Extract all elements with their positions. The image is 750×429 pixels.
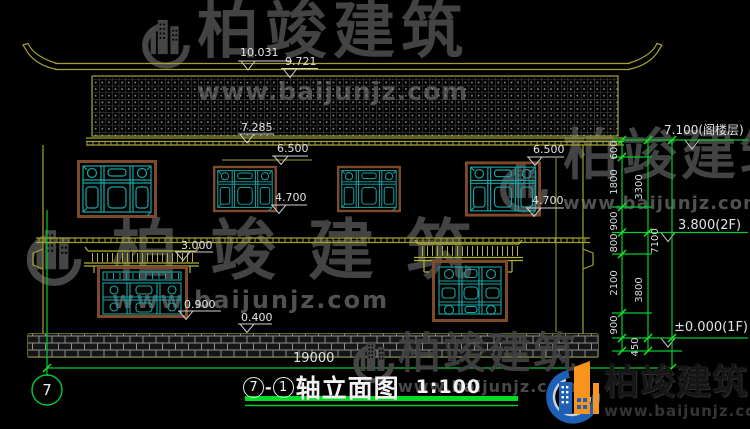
axis-bubble-7: 7 — [42, 381, 52, 399]
vdim-600: 600 — [610, 140, 620, 159]
brand-url: www.baijunjz.com — [604, 404, 750, 419]
drawing-title: 7 - 1 轴立面图 1:100 — [243, 369, 481, 405]
level-label-2f-sill-right: 4.700 — [532, 195, 564, 206]
vdim-2100: 2100 — [610, 270, 620, 295]
vdim-1800: 1800 — [610, 169, 620, 194]
floor-label-1f: ±0.000(1F) — [674, 321, 748, 334]
title-axis-separator: - — [265, 378, 272, 397]
floor-label-attic: 7.100(阁楼层) — [664, 124, 744, 136]
first-floor-window-left — [84, 247, 199, 317]
vdim-7100: 7100 — [651, 228, 661, 253]
vdim-3300: 3300 — [635, 174, 645, 199]
second-floor-windows — [79, 162, 540, 217]
title-scale: 1:100 — [416, 376, 481, 398]
roof-tile-hatch — [92, 76, 618, 136]
title-axis-end-bubble: 1 — [273, 377, 294, 398]
title-text: 轴立面图 — [296, 369, 400, 405]
floor-label-2f: 3.800(2F) — [678, 219, 741, 232]
level-label-2f-head-left: 6.500 — [277, 143, 309, 154]
vdim-800: 800 — [610, 233, 620, 252]
dim-label-total-width: 19000 — [293, 352, 334, 365]
brand-name: 柏竣建筑 — [604, 366, 750, 401]
level-label-ridge: 9.721 — [285, 56, 317, 67]
level-label-1f-sill: 0.900 — [184, 299, 216, 310]
title-axis-start-bubble: 7 — [243, 377, 264, 398]
brand-logo-text: 柏竣建筑 www.baijunjz.com — [604, 366, 750, 419]
level-label-ridge-top: 10.031 — [240, 47, 279, 58]
level-label-2f-sill-left: 4.700 — [275, 192, 307, 203]
cad-elevation-canvas: 柏竣建筑 www.baijunjz.com 柏竣建筑 www.baijunjz.… — [0, 0, 750, 429]
level-label-awning: 3.000 — [181, 240, 213, 251]
level-label-eave: 7.285 — [241, 122, 273, 133]
level-label-plinth: 0.400 — [241, 312, 273, 323]
vdim-3800: 3800 — [635, 277, 645, 302]
vdim-450: 450 — [631, 337, 641, 356]
baijun-logo-icon — [540, 358, 606, 428]
vdim-900a: 900 — [610, 211, 620, 230]
first-floor-window-middle — [414, 240, 523, 321]
level-label-2f-head-right: 6.500 — [533, 144, 565, 155]
vdim-900b: 900 — [610, 315, 620, 334]
